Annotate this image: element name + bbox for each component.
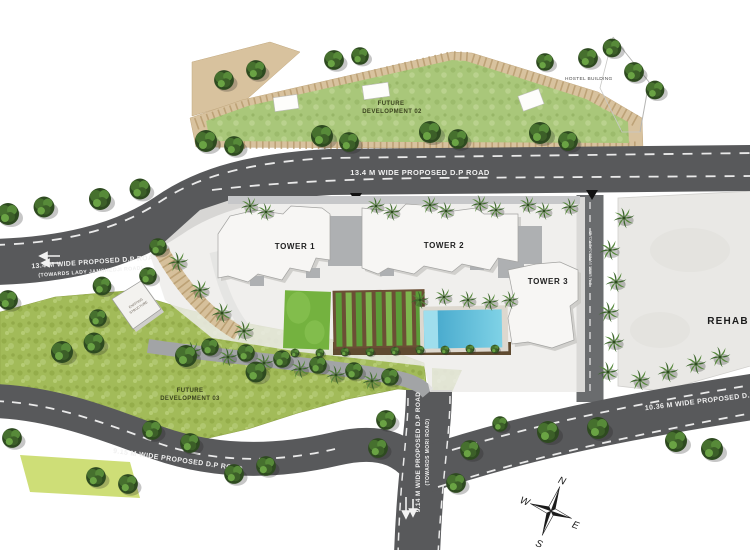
garden-rows	[333, 289, 426, 349]
future-dev-02-structure	[273, 94, 299, 111]
road-south-label: 9.14 M WIDE PROPOSED D.P ROAD	[415, 392, 422, 513]
future-dev-03-label-line1: FUTURE	[177, 388, 204, 394]
road-internal-label: 6 M WIDE INTERNAL ROAD	[588, 231, 593, 285]
future-dev-02-label-line1: FUTURE	[378, 101, 405, 107]
future-development-02-area: FUTURE DEVELOPMENT 02	[190, 42, 643, 149]
compass-east-label: E	[570, 519, 580, 532]
tower-3-footprint	[508, 262, 578, 348]
future-dev-02-label-line2: DEVELOPMENT 02	[362, 109, 422, 115]
site-plan: FUTURE DEVELOPMENT 02 HOSTEL BUILDING FU…	[0, 0, 750, 550]
compass-south-label: S	[534, 538, 544, 550]
compass-north-label: N	[556, 475, 567, 488]
compass-west-label: W	[518, 495, 532, 509]
future-dev-03-label-line2: DEVELOPMENT 03	[160, 396, 220, 402]
road-south-direction: (TOWARDS MORI ROAD)	[425, 419, 431, 486]
hostel-building-label: HOSTEL BUILDING	[565, 76, 613, 82]
road-main-label: 13.4 M WIDE PROPOSED D.P ROAD	[350, 168, 490, 177]
rehab-area: REHAB	[618, 191, 750, 391]
rehab-label: REHAB	[707, 316, 749, 327]
tower-1-label: TOWER 1	[275, 242, 316, 251]
tower-2-label: TOWER 2	[424, 241, 465, 250]
tower-3-label: TOWER 3	[528, 277, 569, 286]
site-plan-canvas: FUTURE DEVELOPMENT 02 HOSTEL BUILDING FU…	[0, 0, 750, 550]
compass-rose: N E S W	[506, 465, 593, 550]
pool-lap-lane	[424, 310, 439, 348]
